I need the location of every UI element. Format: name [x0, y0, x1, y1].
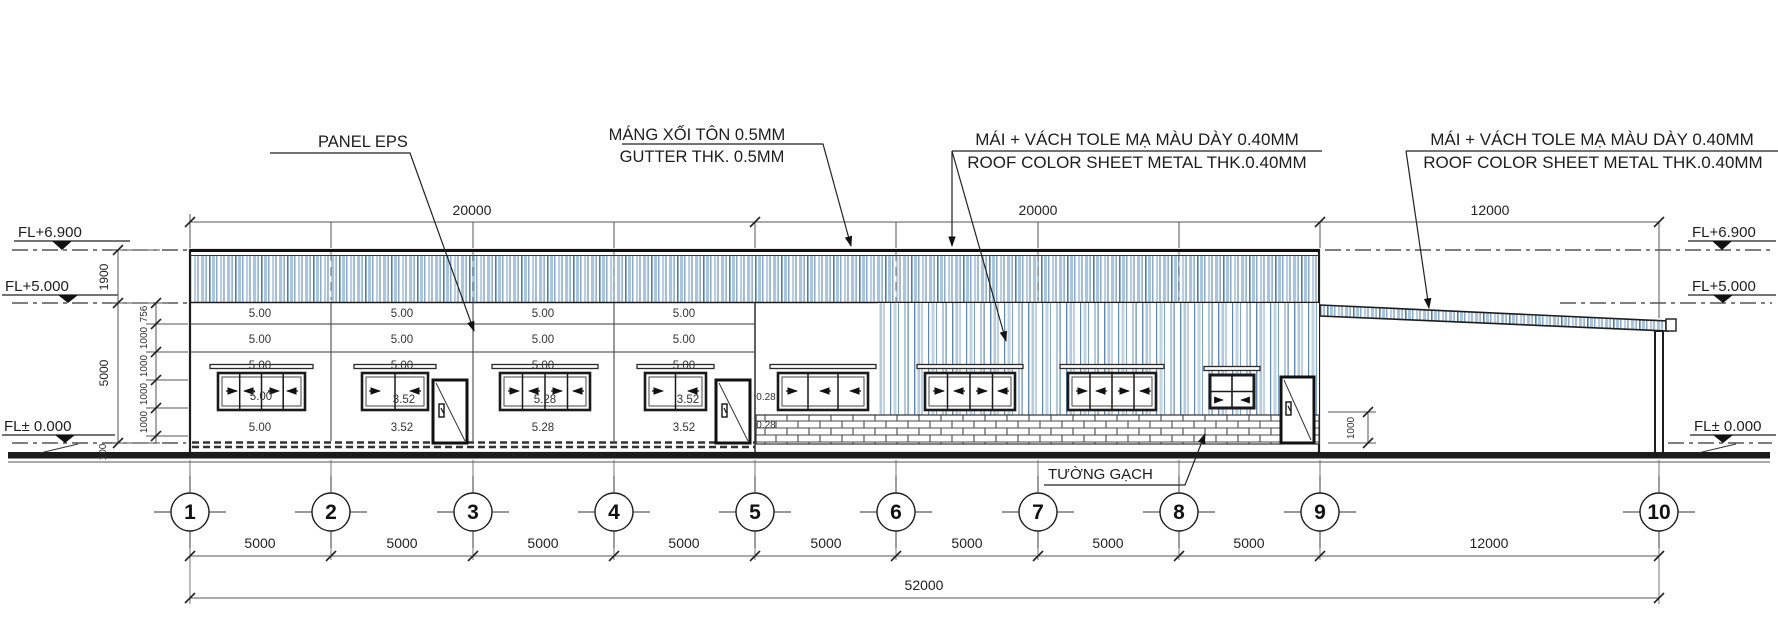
- level-marker: [1713, 295, 1733, 303]
- dim-brick-1000: 1000: [1346, 416, 1357, 439]
- bottom-dim: 5000: [951, 535, 982, 551]
- label-panel-eps: PANEL EPS: [318, 133, 408, 151]
- chain-dim: 1000: [139, 354, 150, 377]
- panel-label: 3.52: [677, 394, 699, 406]
- dim-5000: 5000: [97, 359, 111, 386]
- panel-label: 3.52: [393, 394, 415, 406]
- panel-label: 5.00: [532, 334, 554, 346]
- bottom-dim: 5000: [244, 535, 275, 551]
- level-marker: [55, 435, 75, 443]
- brick-wainscot: [756, 415, 1319, 444]
- label-gutter-en: GUTTER THK. 0.5MM: [620, 148, 785, 166]
- annex-column: [1655, 331, 1663, 453]
- top-dim-1: 20000: [453, 202, 492, 218]
- door-grid3: [433, 380, 467, 443]
- bottom-dim: 12000: [1470, 535, 1509, 551]
- bottom-dim: 5000: [1092, 535, 1123, 551]
- panel-label: 5.00: [673, 360, 695, 372]
- panel-label: 3.52: [391, 422, 413, 434]
- bottom-dim: 5000: [386, 535, 417, 551]
- level-marker: [58, 295, 78, 303]
- bottom-dim: 5000: [1233, 535, 1264, 551]
- door-grid9: [1281, 377, 1314, 443]
- label-brick-wall: TƯỜNG GẠCH: [1048, 466, 1153, 483]
- total-dim-row: 52000: [185, 560, 1664, 604]
- panel-label: 5.00: [391, 334, 413, 346]
- bottom-dim-row: 5000 5000 5000 5000 5000 5000 5000 5000 …: [185, 535, 1664, 561]
- bubble-cross-ticks: [154, 476, 1695, 548]
- total-dim: 52000: [905, 577, 944, 593]
- label-gutter-vi: MÁNG XỐI TÔN 0.5MM: [609, 124, 786, 144]
- left-dimensions: 1900 5000 756 1000 1000 1000 1000 100: [97, 245, 188, 460]
- panel-label: 5.00: [673, 308, 695, 320]
- panel-label: 5.28: [534, 394, 556, 406]
- door-width-dim: 0.28: [756, 420, 776, 431]
- level-label-ground-right: FL± 0.000: [1694, 418, 1761, 435]
- panel-label: 5.00: [391, 360, 413, 372]
- panel-label: 5.00: [532, 308, 554, 320]
- chain-dim: 1000: [139, 382, 150, 405]
- grid-number: 2: [325, 501, 337, 524]
- panel-label: 5.00: [250, 391, 272, 403]
- grid-number: 1: [184, 501, 196, 524]
- window-bay7: [1068, 373, 1156, 410]
- level-marker: [1713, 435, 1733, 443]
- bottom-dim: 5000: [527, 535, 558, 551]
- chain-dim: 1000: [139, 410, 150, 433]
- grid-number: 5: [749, 501, 761, 524]
- level-label-ground-left: FL± 0.000: [4, 418, 71, 435]
- level-marker: [1712, 241, 1732, 250]
- panel-label: 5.00: [391, 308, 413, 320]
- door-width-dim: 0.28: [756, 392, 776, 403]
- level-marker: [52, 241, 72, 250]
- label-annex-roof-vi: MÁI + VÁCH TOLE MẠ MÀU DÀY 0.40MM: [1430, 130, 1754, 149]
- window-bay6: [925, 373, 1015, 410]
- panel-label: 3.52: [673, 422, 695, 434]
- grid-number: 9: [1314, 501, 1326, 524]
- grid-number: 10: [1647, 501, 1670, 524]
- leader-annex-roof: [1406, 151, 1429, 308]
- level-label-roof-right: FL+6.900: [1692, 224, 1756, 241]
- elevation-drawing: 5.00 5.00 5.00 5.00 5.00 5.00 5.00 5.00 …: [0, 0, 1778, 632]
- dim-100: 100: [98, 443, 109, 460]
- main-building: 5.00 5.00 5.00 5.00 5.00 5.00 5.00 5.00 …: [190, 250, 1319, 453]
- level-label-roof-left: FL+6.900: [18, 224, 82, 241]
- level-label-eave-left: FL+5.000: [5, 278, 69, 295]
- window-bay5: [778, 373, 868, 410]
- panel-label: 5.00: [249, 334, 271, 346]
- window-bay8-small: [1210, 375, 1254, 408]
- annex: [1320, 305, 1676, 453]
- label-roof-wall-vi: MÁI + VÁCH TOLE MẠ MÀU DÀY 0.40MM: [975, 130, 1299, 149]
- annex-roof-endcap: [1666, 319, 1676, 331]
- top-dim-2: 20000: [1019, 202, 1058, 218]
- panel-label: 5.00: [673, 334, 695, 346]
- annex-sloped-roof: [1320, 305, 1668, 331]
- elevation-drawing-sheet: 5.00 5.00 5.00 5.00 5.00 5.00 5.00 5.00 …: [0, 0, 1778, 632]
- grid-number: 4: [608, 501, 620, 524]
- grid-number: 8: [1173, 501, 1185, 524]
- grid-number: 3: [467, 501, 479, 524]
- level-label-eave-right: FL+5.000: [1692, 278, 1756, 295]
- chain-dim: 1000: [139, 326, 150, 349]
- grid-axes: 1 2 3 4 5 6 7 8 9 10 5000 5000 5000 5000…: [154, 460, 1695, 604]
- bottom-dim: 5000: [668, 535, 699, 551]
- panel-label: 5.00: [249, 308, 271, 320]
- label-roof-wall-en: ROOF COLOR SHEET METAL THK.0.40MM: [967, 153, 1306, 172]
- panel-label: 5.00: [249, 360, 271, 372]
- bottom-dim: 5000: [810, 535, 841, 551]
- panel-label: 5.00: [532, 360, 554, 372]
- grid-number: 7: [1032, 501, 1044, 524]
- dim-1900: 1900: [97, 263, 111, 290]
- chain-dim: 756: [139, 305, 150, 322]
- grid-number: 6: [890, 501, 902, 524]
- label-annex-roof-en: ROOF COLOR SHEET METAL THK.0.40MM: [1423, 153, 1762, 172]
- panel-label: 5.28: [532, 422, 554, 434]
- door-grid5: [716, 380, 750, 443]
- brick-height-dimension: 1000: [1328, 407, 1376, 448]
- top-dim-3: 12000: [1471, 202, 1510, 218]
- roof-band-stripes: [191, 256, 1318, 302]
- panel-label: 5.00: [249, 422, 271, 434]
